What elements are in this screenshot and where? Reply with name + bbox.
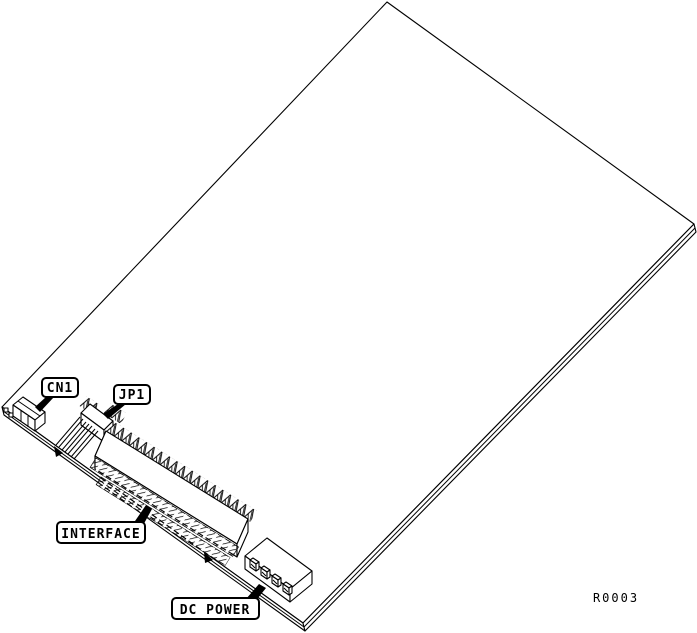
callout-cn1-label: CN1 (47, 381, 73, 396)
board-diagram-canvas: CN1 JP1 INTERFACE DC POWER R0003 (0, 0, 697, 633)
callout-interface-label: INTERFACE (61, 527, 140, 542)
callout-jp1-label: JP1 (119, 388, 145, 403)
cn1-pin (9, 413, 13, 417)
figure-reference: R0003 (593, 591, 639, 605)
callout-dc-power-label: DC POWER (180, 603, 251, 618)
cn1-pin (4, 408, 8, 412)
